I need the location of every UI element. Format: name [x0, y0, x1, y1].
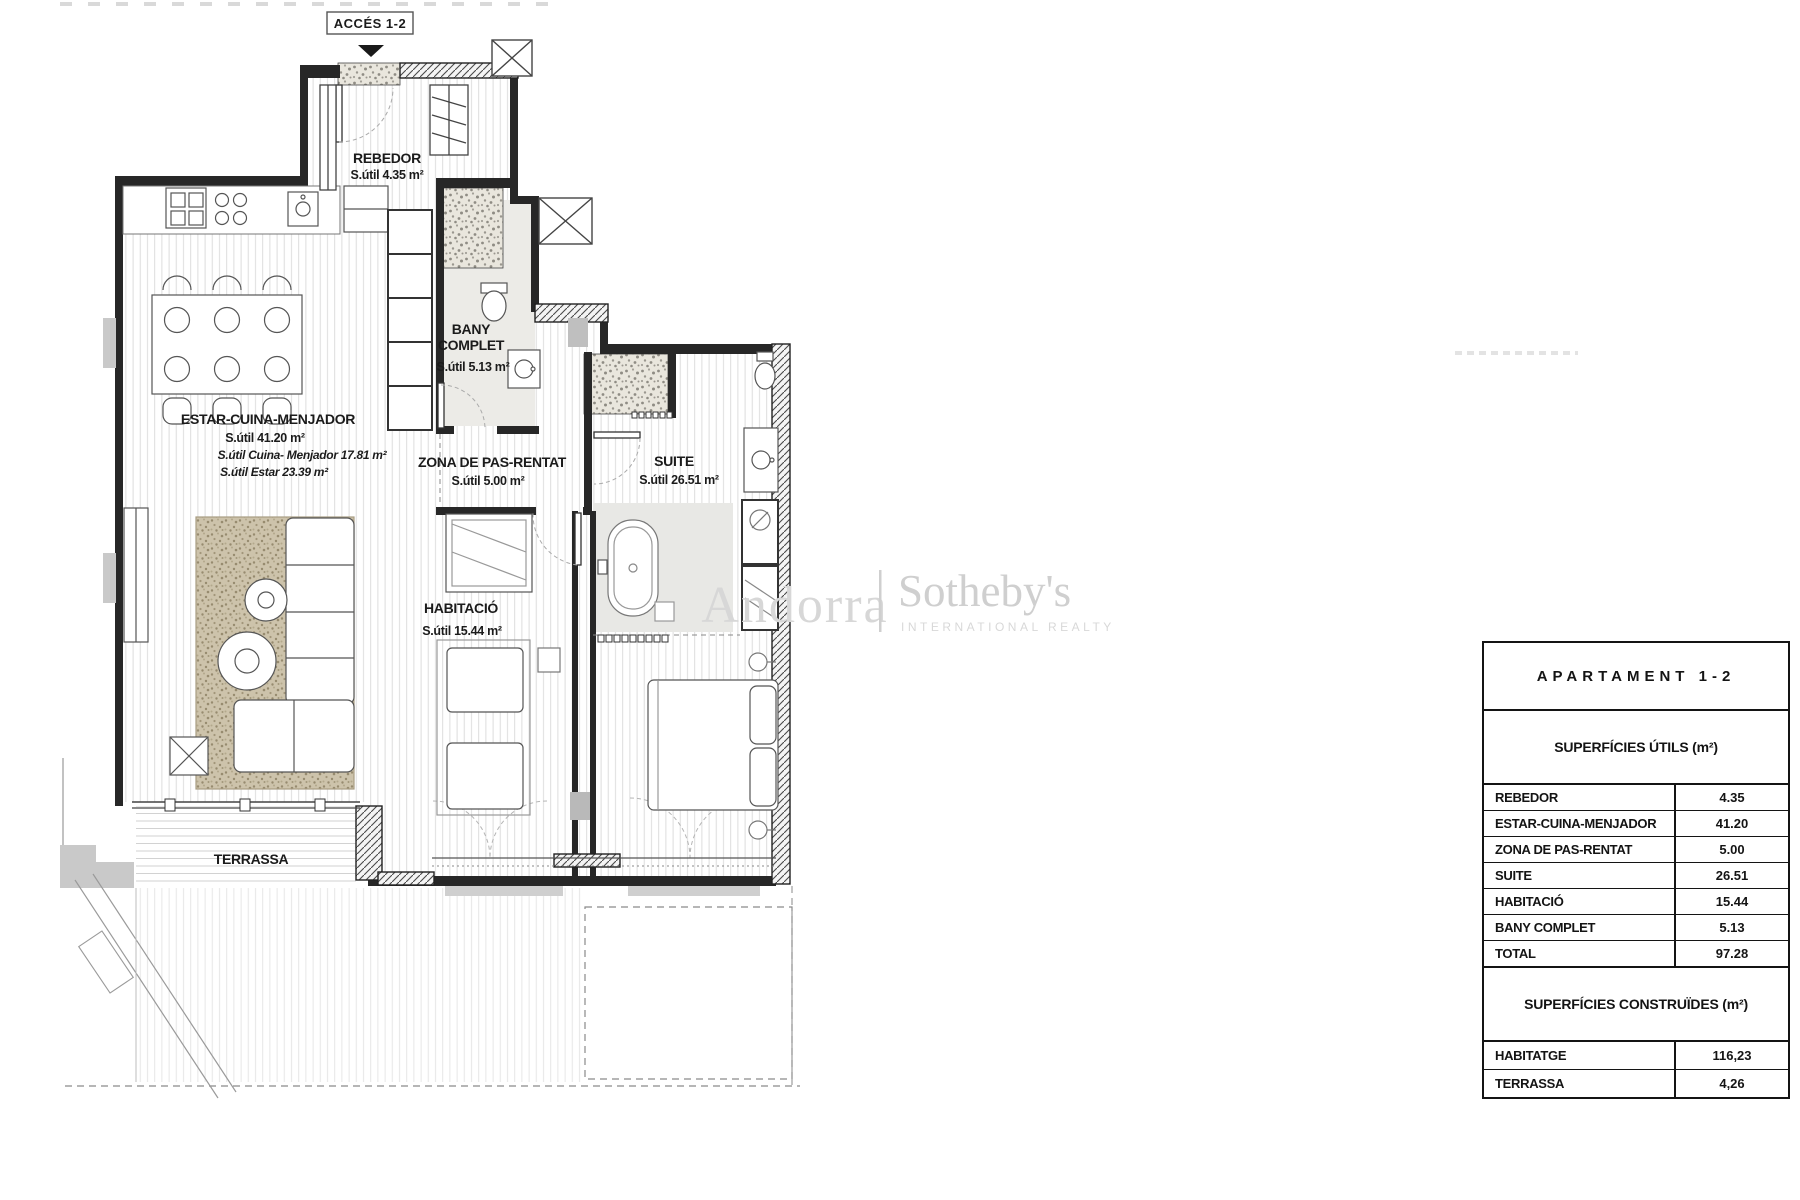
tub-faucet — [598, 560, 607, 574]
row-value: 26.51 — [1674, 863, 1788, 888]
row-label: TERRASSA — [1484, 1070, 1674, 1097]
row-value: 4.35 — [1674, 785, 1788, 810]
nightstand — [538, 648, 560, 672]
laundry-zone — [584, 354, 668, 414]
entry-door-leaf — [336, 85, 342, 142]
floorplan-page: REBEDOR S.útil 4.35 m² ESTAR-CUINA-MENJA… — [0, 0, 1800, 1200]
row-value: 116,23 — [1674, 1042, 1788, 1069]
estar-label: ESTAR-CUINA-MENJADOR — [181, 411, 355, 427]
access-label: ACCÉS 1-2 — [334, 16, 406, 31]
table-row: BANY COMPLET 5.13 — [1484, 915, 1788, 941]
bed-upper — [447, 648, 523, 712]
summary-table-title: APARTAMENT 1-2 — [1484, 643, 1788, 711]
row-value: 15.44 — [1674, 889, 1788, 914]
table-row: HABITATGE 116,23 — [1484, 1042, 1788, 1070]
watermark-right: Sotheby's — [898, 566, 1071, 616]
suite-door-leaf — [594, 432, 640, 438]
bath-stool — [655, 602, 674, 621]
suite-label: SUITE — [654, 453, 694, 469]
table-row: TERRASSA 4,26 — [1484, 1070, 1788, 1097]
suite-toilet-tank — [757, 352, 773, 361]
constr-section-header: SUPERFÍCIES CONSTRUÏDES (m²) — [1484, 967, 1788, 1042]
table-row-total: TOTAL 97.28 — [1484, 941, 1788, 967]
bany-shower — [442, 188, 503, 268]
summary-table: APARTAMENT 1-2 SUPERFÍCIES ÚTILS (m²) RE… — [1482, 641, 1790, 1099]
watermark-tagline: INTERNATIONAL REALTY — [901, 620, 1115, 634]
apartment-title: APARTAMENT 1-2 — [1537, 668, 1736, 685]
row-label: HABITACIÓ — [1484, 889, 1674, 914]
suite-area: S.útil 26.51 m² — [639, 473, 719, 487]
suite-toilet — [755, 363, 775, 389]
bathtub — [608, 520, 658, 616]
table-row: ZONA DE PAS-RENTAT 5.00 — [1484, 837, 1788, 863]
table-row: HABITACIÓ 15.44 — [1484, 889, 1788, 915]
row-label: ESTAR-CUINA-MENJADOR — [1484, 811, 1674, 836]
table-row: REBEDOR 4.35 — [1484, 785, 1788, 811]
habitacio-label: HABITACIÓ — [424, 599, 498, 616]
suite-pillow — [750, 686, 776, 744]
rebedor-label: REBEDOR — [353, 150, 421, 166]
toilet — [482, 291, 506, 321]
zona-label: ZONA DE PAS-RENTAT — [418, 454, 567, 470]
storage-column — [388, 210, 432, 430]
bedside-lamp — [749, 653, 767, 671]
suite-radiator — [598, 635, 668, 642]
row-label: REBEDOR — [1484, 785, 1674, 810]
rebedor-area: S.útil 4.35 m² — [351, 168, 424, 182]
utils-section-header: SUPERFÍCIES ÚTILS (m²) — [1484, 711, 1788, 785]
estar-sub-cuina: S.útil Cuina- Menjador 17.81 m² — [218, 448, 388, 462]
row-value: 4,26 — [1674, 1070, 1788, 1097]
sofa — [286, 518, 354, 704]
terrace-floor — [136, 806, 356, 884]
row-label: SUITE — [1484, 863, 1674, 888]
watermark-divider — [879, 570, 882, 632]
table-row: SUITE 26.51 — [1484, 863, 1788, 889]
row-label: BANY COMPLET — [1484, 915, 1674, 940]
watermark: Andorra Sotheby's INTERNATIONAL REALTY — [701, 566, 1114, 634]
row-label: ZONA DE PAS-RENTAT — [1484, 837, 1674, 862]
row-value: 97.28 — [1674, 941, 1788, 966]
estar-sub-estar: S.útil Estar 23.39 m² — [220, 465, 329, 479]
row-label: TOTAL — [1484, 941, 1674, 966]
entry-doormat — [338, 63, 400, 85]
habitacio-area: S.útil 15.44 m² — [422, 624, 502, 638]
terrassa-label: TERRASSA — [214, 851, 289, 867]
bany-label-2: COMPLET — [438, 337, 505, 353]
row-value: 41.20 — [1674, 811, 1788, 836]
dining-table — [152, 276, 302, 424]
estar-area: S.útil 41.20 m² — [225, 431, 305, 445]
bed-lower — [447, 743, 523, 809]
row-label: HABITATGE — [1484, 1042, 1674, 1069]
bany-area: S.útil 5.13 m² — [437, 360, 510, 374]
row-value: 5.13 — [1674, 915, 1788, 940]
bany-label-1: BANY — [452, 321, 491, 337]
watermark-left: Andorra — [701, 577, 888, 634]
wardrobe — [446, 514, 532, 592]
bany-door-leaf — [438, 383, 444, 428]
table-row: ESTAR-CUINA-MENJADOR 41.20 — [1484, 811, 1788, 837]
row-value: 5.00 — [1674, 837, 1788, 862]
habitacio-door-leaf — [575, 513, 581, 565]
hob-burner — [216, 194, 229, 207]
zona-area: S.útil 5.00 m² — [452, 474, 525, 488]
kitchen-counter — [123, 186, 388, 234]
